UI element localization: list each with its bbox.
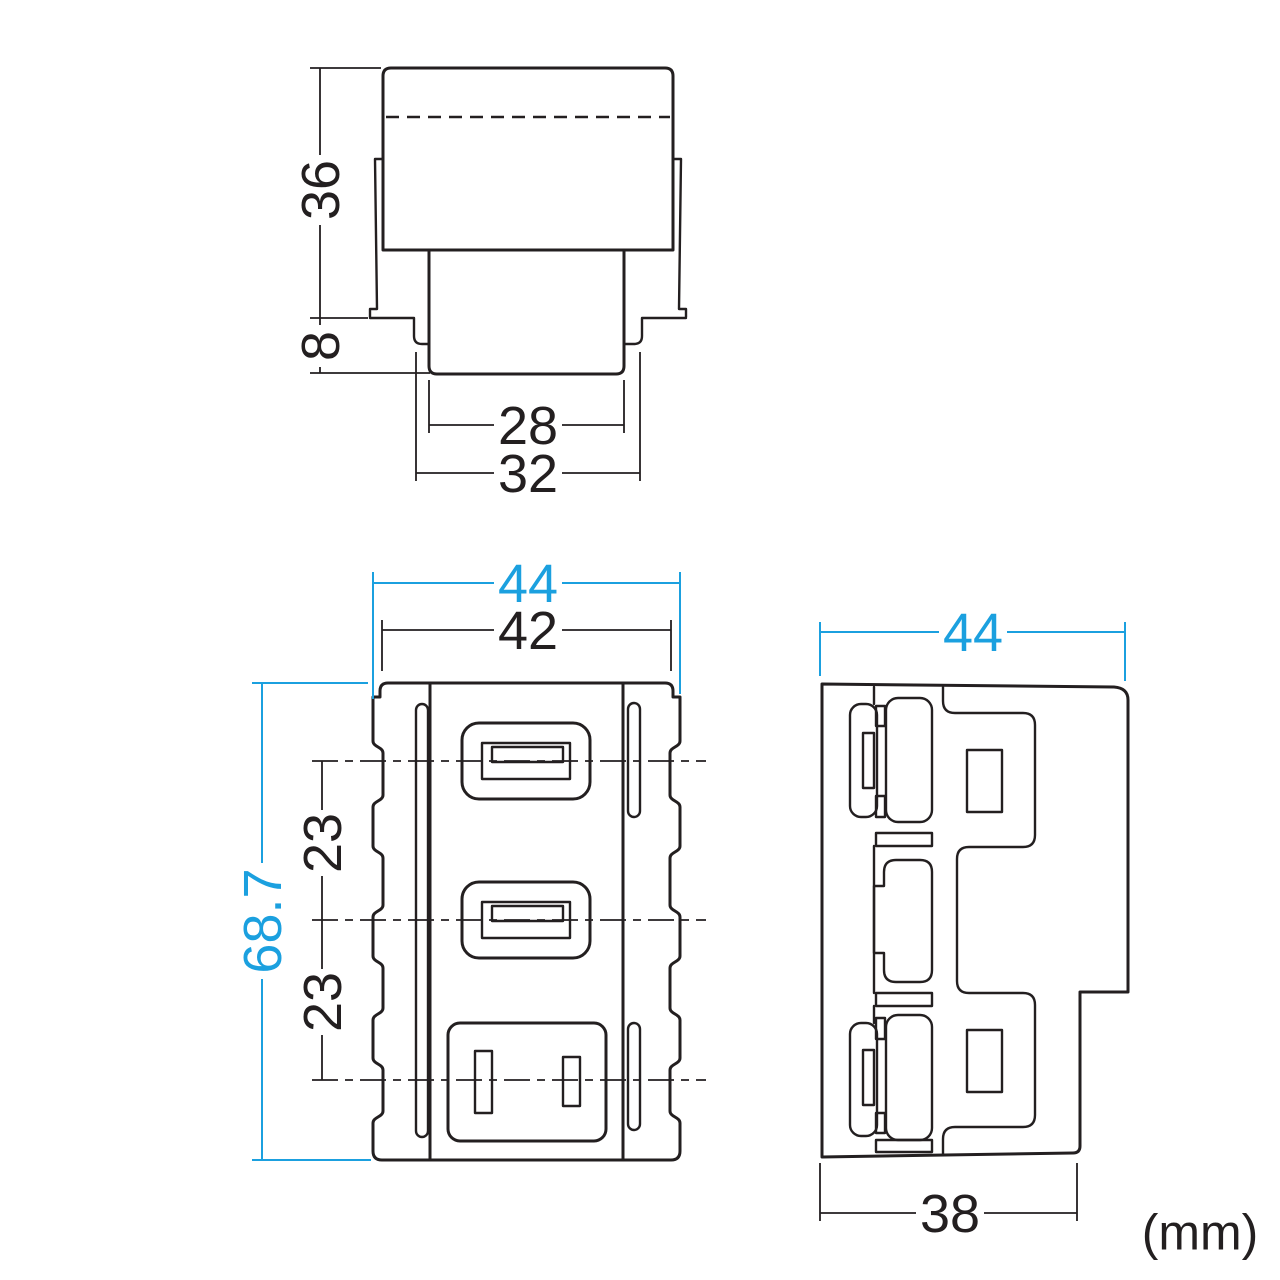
top-view-rear-box [429,250,624,374]
side-view-screw-hole-upper [967,750,1002,812]
usb-port-2-tongue [492,906,563,921]
clip-top-body [886,698,932,822]
dim-port-pitch-lower: 23 [293,972,353,1032]
dim-front-height: 68.7 [233,868,293,973]
side-view-base-band [876,1140,932,1152]
ac-outlet-slot-right [563,1057,580,1106]
dim-side-depth: 44 [943,603,1003,663]
dimension-drawing: 36 8 28 32 [0,0,1280,1280]
front-view: 44 42 68.7 23 23 [233,554,706,1160]
clip-bottom-latch-window [863,1050,874,1105]
front-view-right-rail-slot-lower [628,1023,640,1130]
clip-bottom-body [886,1015,932,1140]
technical-drawing-page: 36 8 28 32 [0,0,1280,1280]
dim-port-pitch-upper: 23 [293,813,353,873]
side-view-clip-bottom [850,1015,932,1140]
ac-outlet-slot-left [475,1051,492,1113]
dim-top-flange-depth: 8 [291,331,351,361]
side-view-clip-top [850,698,932,822]
side-view-inner-bracket [943,687,1035,1155]
front-view-right-rail-slot-upper [628,703,640,817]
dim-top-outer-width: 32 [498,444,558,504]
dim-side-bottom-depth: 38 [920,1184,980,1244]
ac-outlet-recess [448,1023,606,1141]
side-view-separator-lower [876,993,932,1006]
dim-top-height: 36 [291,160,351,220]
side-view-middle-module [874,860,932,982]
top-view: 36 8 28 32 [291,68,686,504]
side-view-screw-hole-lower [967,1030,1002,1092]
usb-port-1-tongue [492,747,563,762]
usb-port-2 [462,882,590,958]
top-view-body-outline [383,68,673,250]
side-view: 44 38 [820,603,1128,1244]
ac-outlet [448,1023,606,1141]
clip-top-latch-window [863,733,874,788]
dim-front-body-width: 42 [498,601,558,661]
unit-label: (mm) [1142,1205,1259,1261]
side-view-separator-upper [876,833,932,846]
side-view-outline [822,684,1128,1157]
usb-port-1 [462,723,590,799]
